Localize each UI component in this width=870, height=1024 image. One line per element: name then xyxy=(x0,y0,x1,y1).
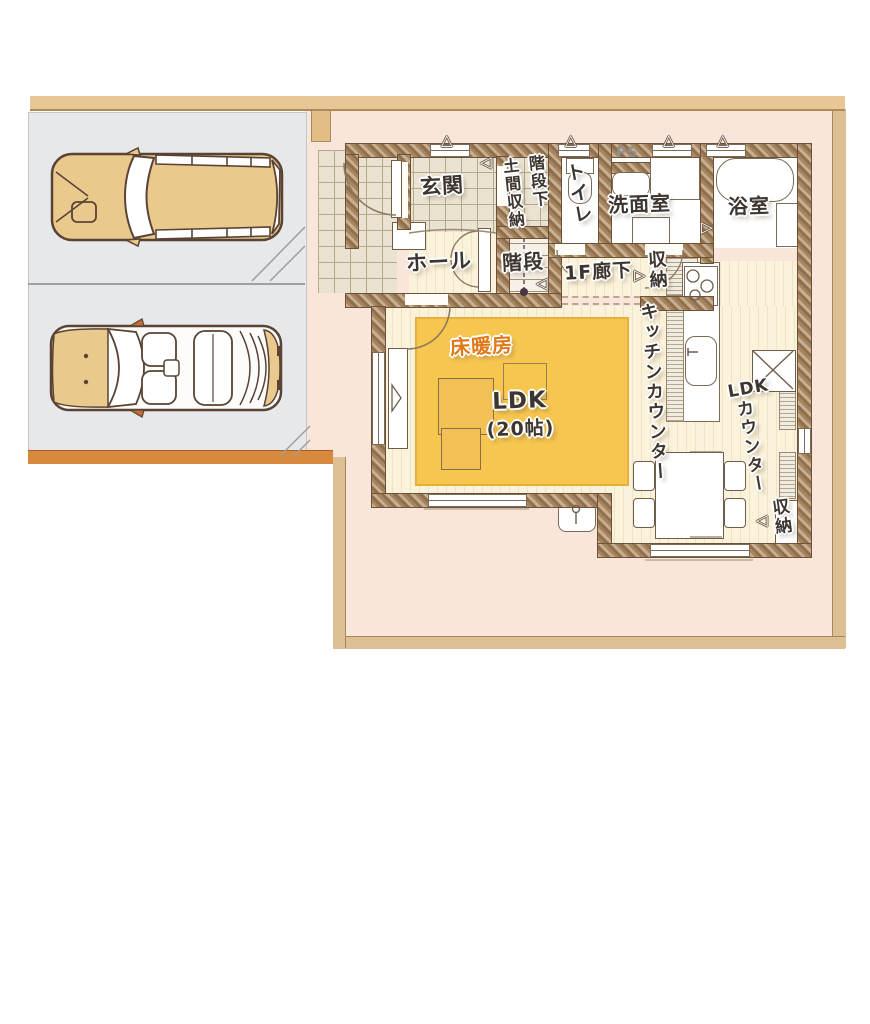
tv-board xyxy=(388,348,408,449)
window-dining-south xyxy=(650,544,750,557)
dining-chair-2 xyxy=(633,498,655,528)
wall-east xyxy=(797,143,812,558)
label-bathroom: 浴室 xyxy=(728,189,771,219)
label-corridor-1f: 1F廊下 xyxy=(563,255,633,286)
label-genkan: 玄関 xyxy=(419,169,465,201)
hall-ldk-door-gap xyxy=(405,294,448,305)
site-frame-bottom xyxy=(333,636,845,649)
bath-panel xyxy=(776,203,798,247)
label-ldk-size: (20帖) xyxy=(445,411,596,443)
window-marker-washroom-icon: △ xyxy=(663,133,675,148)
dining-chair-4 xyxy=(724,498,746,528)
window-marker-bath-icon: △ xyxy=(717,133,729,148)
hall-closet-door xyxy=(478,228,491,292)
wall-porch-west xyxy=(345,154,359,249)
open-passage-dash-1 xyxy=(562,296,640,298)
door-marker-corridor-icon: ◁ xyxy=(536,276,548,291)
kitchen-sink xyxy=(685,336,717,386)
parking-stall-divider xyxy=(28,283,305,285)
label-under-stairs-storage: 土間収納 階段下 xyxy=(496,154,553,231)
floorplan-canvas: △ △ △ △ ◁ ◁ ▷ ▷ ◁ 玄関 土間収納 階段下 トイレ PS 洗面室… xyxy=(0,0,870,1024)
kitchen-floor xyxy=(712,261,797,306)
label-washroom: 洗面室 xyxy=(608,187,672,218)
curb xyxy=(28,450,333,464)
street-band xyxy=(30,96,845,111)
toilet-door-gap xyxy=(555,244,585,255)
label-hall: ホール xyxy=(405,244,472,277)
window-marker-genkan-icon: △ xyxy=(441,133,453,148)
label-storage-corridor: 収納 xyxy=(642,249,671,291)
site-frame-left xyxy=(333,457,346,648)
front-door-slab xyxy=(391,160,402,218)
window-ldk-west xyxy=(372,352,385,445)
kitchen-counter-bar xyxy=(666,300,684,422)
parking-area xyxy=(28,112,307,459)
label-ps: PS xyxy=(616,145,638,161)
door-marker-bath-icon: ▷ xyxy=(701,220,713,235)
label-stairs: 階段 xyxy=(501,245,544,276)
label-floor-heating: 床暖房 xyxy=(449,328,513,360)
sill-ldk-south xyxy=(424,508,529,510)
window-marker-toilet-icon: △ xyxy=(565,133,577,148)
gate-post xyxy=(311,110,331,142)
label-ldk-block: LDK (20帖) xyxy=(444,385,596,443)
label-storage-br: 収納 xyxy=(765,496,795,537)
open-passage-dash-2 xyxy=(562,303,640,305)
sill-dining-south xyxy=(645,559,753,561)
window-ldk-south xyxy=(428,494,527,507)
window-ldk-east xyxy=(798,428,811,454)
site-frame-right xyxy=(832,109,846,648)
door-marker-storage-br-icon: ◁ xyxy=(756,513,768,528)
door-marker-doma-icon: ◁ xyxy=(480,155,492,170)
